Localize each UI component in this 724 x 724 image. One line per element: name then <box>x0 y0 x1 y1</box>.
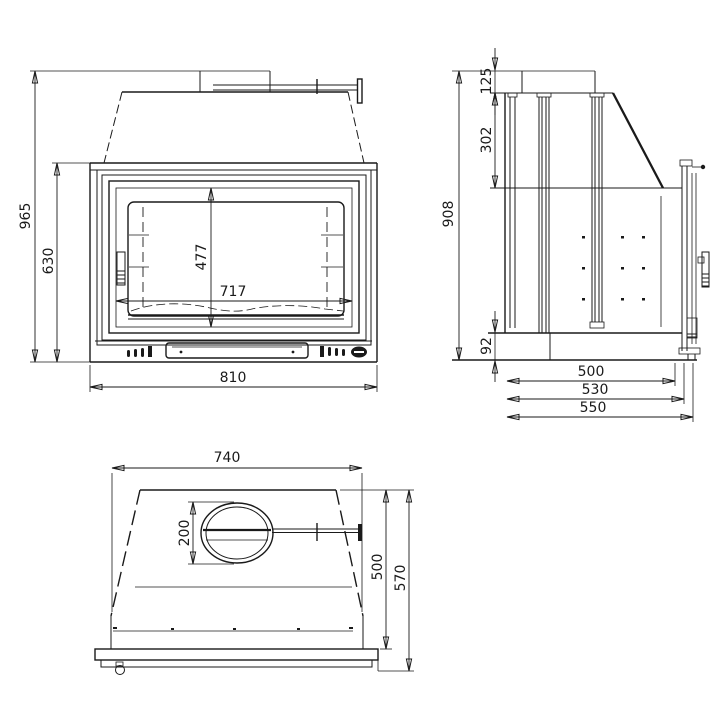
firebox-body <box>90 163 377 362</box>
dim-front-overall-height: 965 <box>18 203 34 230</box>
dimensions-side: 908 125 302 92 500 530 550 <box>441 48 693 422</box>
leveling-foot <box>116 662 125 675</box>
dimensions-front: 965 630 477 717 810 <box>18 71 377 392</box>
dimensions-plan: 740 200 500 570 <box>112 450 414 671</box>
air-vents-right <box>320 346 345 357</box>
dim-side-overall-depth: 550 <box>580 400 607 416</box>
dim-front-door-width: 717 <box>220 284 247 300</box>
side-flue-collar <box>452 71 595 93</box>
dim-plan-overall-depth: 570 <box>393 565 409 592</box>
dim-side-flue-collar-height: 125 <box>479 68 495 95</box>
flue-outlet-circle <box>201 503 273 563</box>
door-latch <box>117 252 125 285</box>
dim-front-overall-width: 810 <box>220 370 247 386</box>
dim-side-overall-height: 908 <box>441 201 457 228</box>
dim-plan-flue-diameter: 200 <box>177 520 193 547</box>
plan-view: 740 200 500 570 <box>95 450 414 675</box>
front-view: 965 630 477 717 810 <box>18 71 377 392</box>
dim-side-hood-top-depth: 302 <box>479 127 495 154</box>
technical-drawing-canvas: 965 630 477 717 810 <box>0 0 724 724</box>
side-door-frame <box>679 160 709 360</box>
side-door-handle <box>698 252 709 287</box>
hood <box>104 92 364 163</box>
plan-body <box>111 490 363 649</box>
dim-side-depth-to-glass: 500 <box>578 364 605 380</box>
dim-front-body-height: 630 <box>41 248 57 275</box>
base-plate <box>95 649 378 675</box>
side-view: 908 125 302 92 500 530 550 <box>441 48 709 422</box>
dim-plan-depth-to-fascia: 500 <box>370 554 386 581</box>
dim-plan-front-width: 740 <box>214 450 241 466</box>
plan-damper-rod <box>272 523 362 541</box>
dim-side-depth-to-door: 530 <box>582 382 609 398</box>
flue-collar <box>30 71 270 92</box>
dim-front-door-height: 477 <box>194 244 210 271</box>
fixing-dots <box>582 236 645 301</box>
air-control-knob <box>351 347 367 358</box>
drawing-page: 965 630 477 717 810 <box>0 0 724 724</box>
bottom-fascia <box>95 341 372 358</box>
damper-control-rod <box>213 79 362 103</box>
dim-side-base-height: 92 <box>479 337 495 355</box>
air-vents-left <box>127 346 152 357</box>
